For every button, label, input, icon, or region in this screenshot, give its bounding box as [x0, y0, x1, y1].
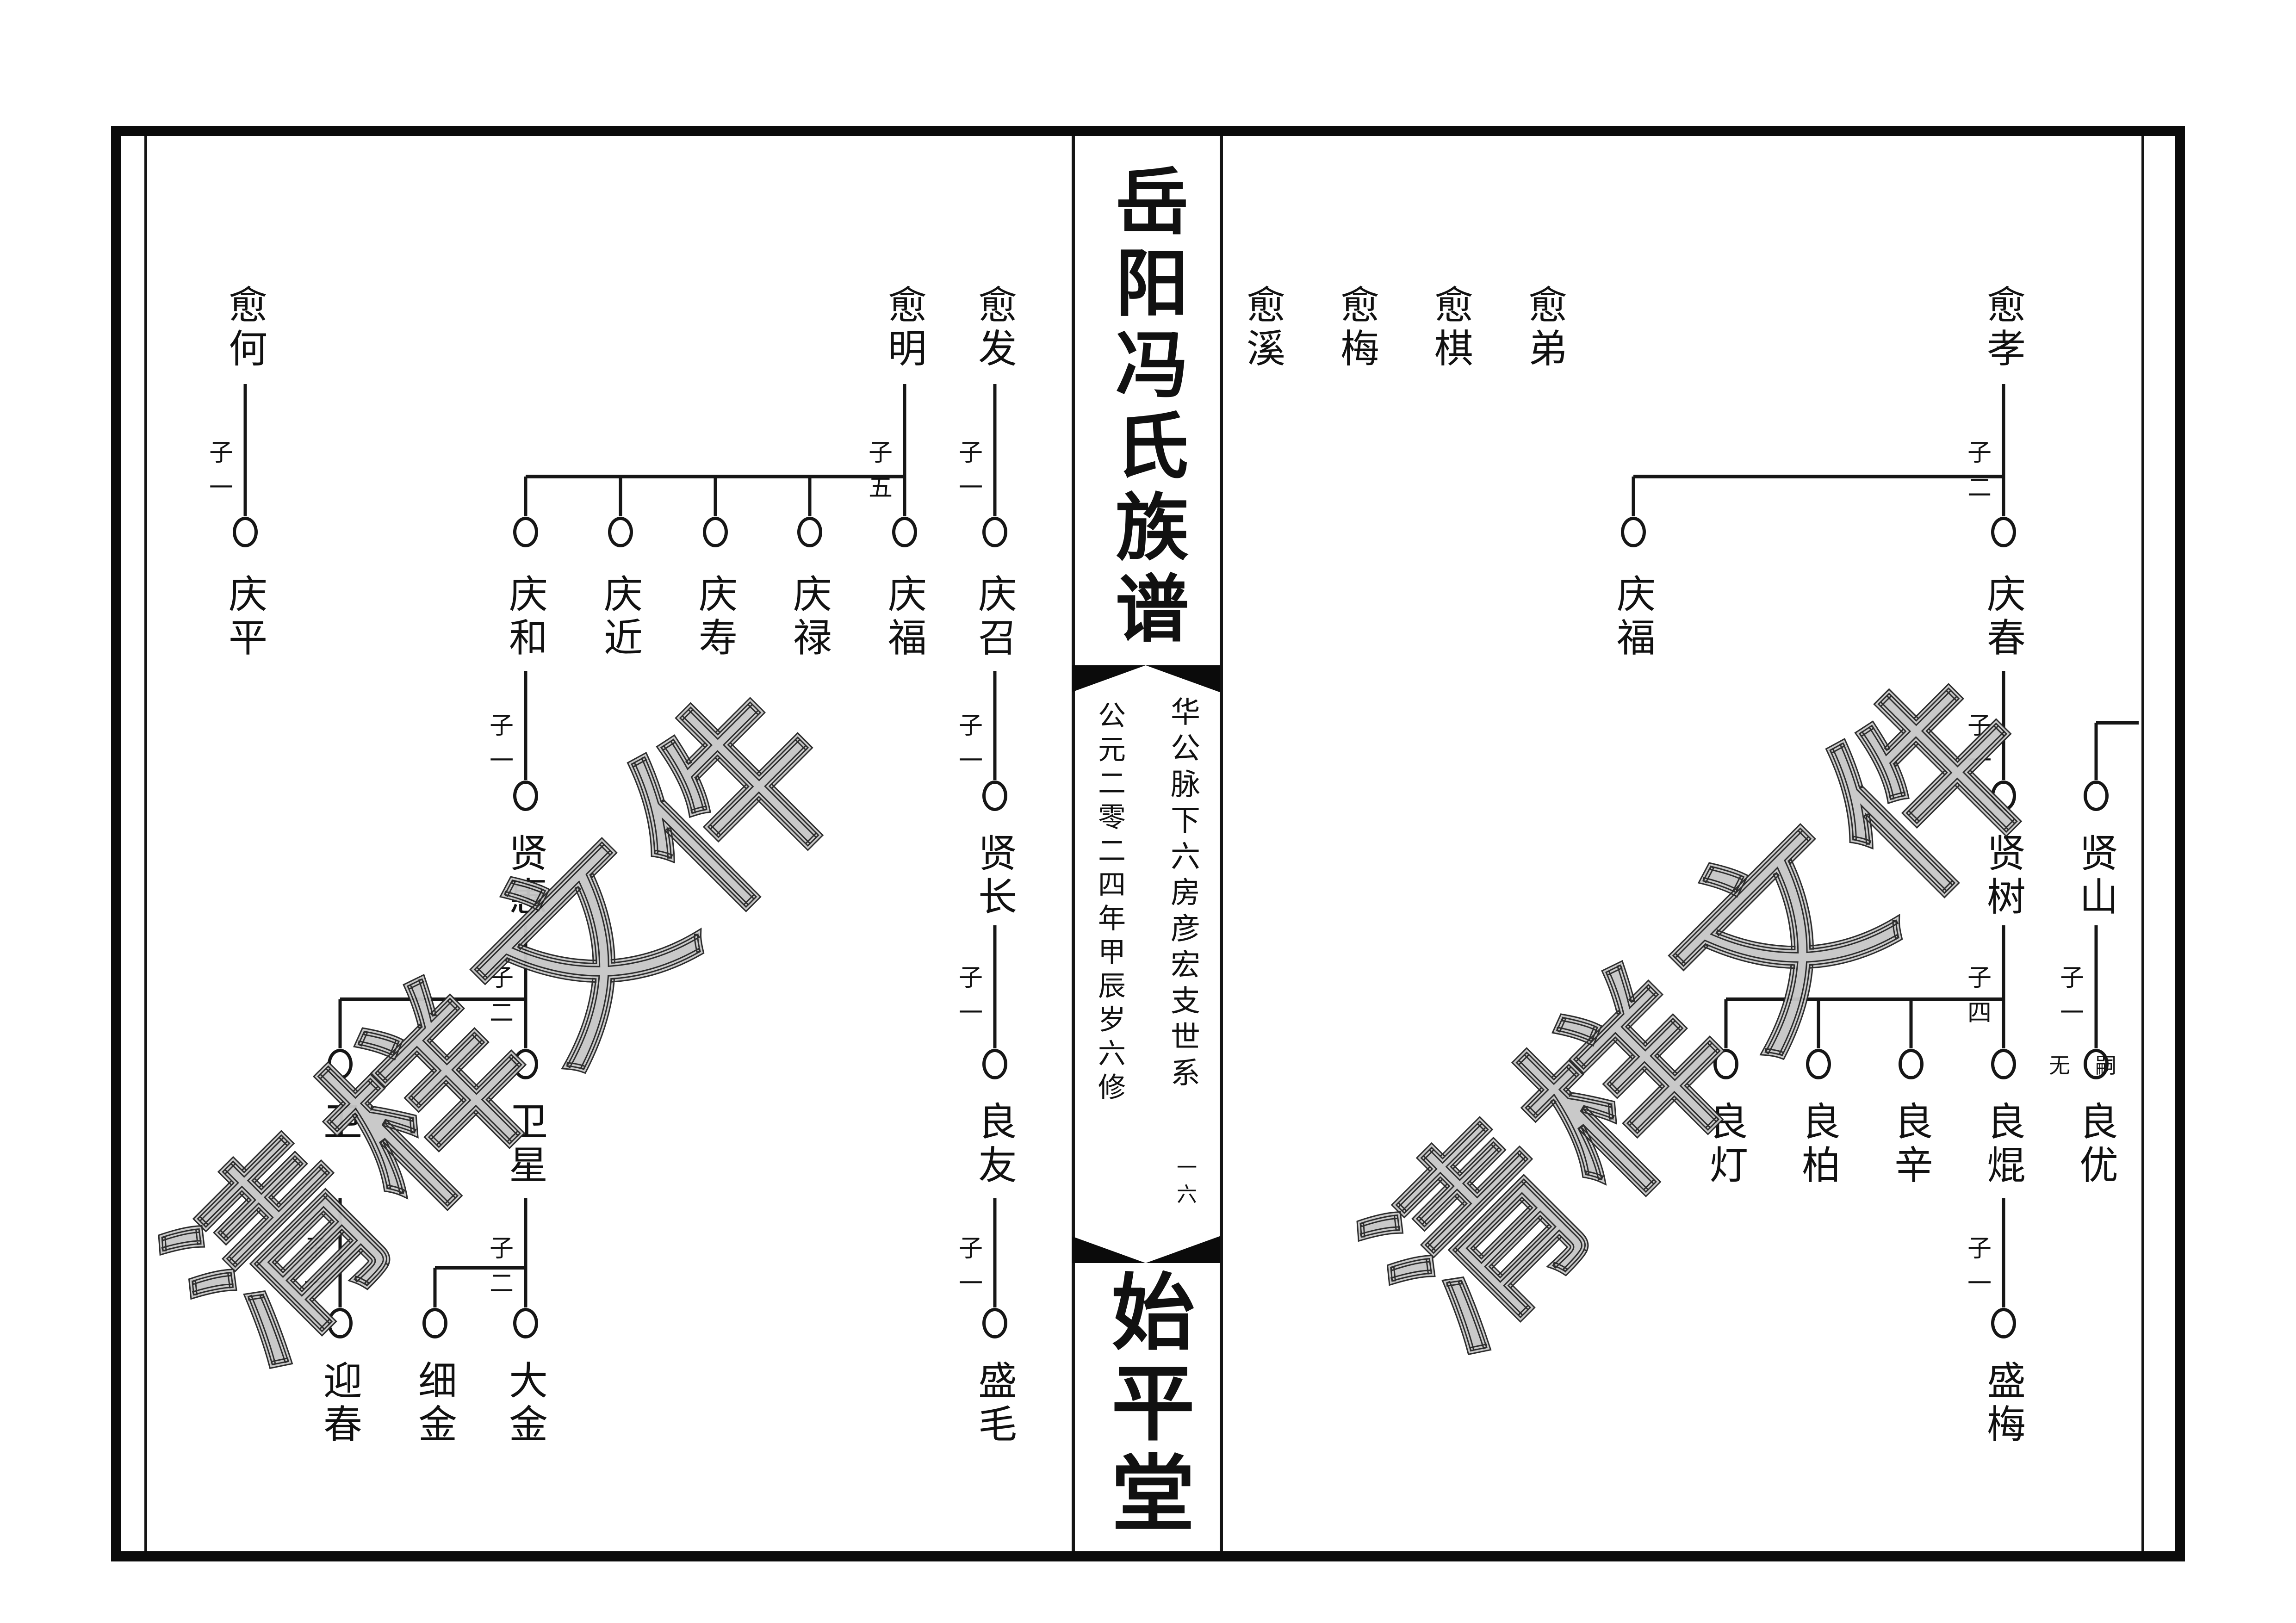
descent-line-horizontal [1633, 475, 2004, 478]
person-name: 细金 [407, 1360, 463, 1447]
person-name: 愈弟 [1517, 285, 1573, 372]
spine-rule-right [1220, 136, 1223, 1551]
person-node-circle [1991, 517, 2016, 547]
person-name: 良柏 [1791, 1101, 1847, 1188]
column-rule-right-page [2141, 136, 2144, 1551]
person-name: 庆福 [1606, 574, 1662, 661]
person-name: 庆近 [593, 574, 649, 661]
genealogy-book-page: 岳阳冯氏族谱 华公脉下六房彦宏支世系 公元二零二四年甲辰岁六修 一六 始平堂 愈… [0, 0, 2296, 1623]
descent-line-vertical [524, 671, 527, 780]
descent-line-vertical [903, 384, 906, 516]
person-name: 盛毛 [967, 1360, 1023, 1447]
person-node-circle [1991, 1049, 2016, 1079]
son-count-label: 子一 [951, 440, 986, 510]
person-node-circle [513, 517, 538, 547]
column-rule-left-page [144, 136, 147, 1551]
person-name: 愈何 [217, 285, 273, 372]
descent-line-vertical [244, 384, 247, 516]
person-node-circle [233, 517, 258, 547]
person-name: 愈梅 [1329, 285, 1385, 372]
person-name: 庆和 [498, 574, 554, 661]
person-node-circle [1991, 1308, 2016, 1338]
person-node-circle [703, 517, 728, 547]
son-count-label: 子一 [951, 1235, 986, 1306]
descent-line-vertical [808, 477, 812, 516]
heir-status-annotation: 无嗣 [2049, 1049, 2141, 1079]
person-name: 贤山 [2068, 833, 2124, 920]
person-node-circle [982, 517, 1007, 547]
person-name: 庆春 [1976, 574, 2032, 661]
person-node-circle [982, 1049, 1007, 1079]
descent-line-vertical [993, 671, 997, 780]
person-name: 庆禄 [782, 574, 838, 661]
person-name: 良友 [967, 1101, 1023, 1188]
son-count-label: 子一 [2053, 965, 2087, 1035]
descent-line-vertical [2002, 1198, 2005, 1307]
spine-title: 岳阳冯氏族谱 [1093, 163, 1199, 652]
person-node-circle [608, 517, 633, 547]
descent-line-vertical [2095, 925, 2098, 1048]
person-node-circle [1899, 1049, 1924, 1079]
descent-line-vertical [714, 477, 717, 516]
son-count-label: 子四 [1960, 965, 1995, 1035]
descent-line-vertical [2002, 384, 2005, 516]
person-node-circle [797, 517, 822, 547]
descent-line-vertical [1910, 999, 1913, 1048]
person-node-circle [513, 1308, 538, 1338]
descent-line-vertical [993, 1198, 997, 1307]
person-name: 庆平 [217, 574, 273, 661]
son-count-label: 子一 [482, 712, 517, 783]
descent-line-vertical [524, 1198, 527, 1307]
son-count-label: 子二 [482, 1235, 517, 1306]
descent-line-horizontal [2096, 721, 2139, 725]
descent-line-vertical [2095, 723, 2098, 780]
hall-name: 始平堂 [1086, 1269, 1206, 1541]
descent-line-vertical [524, 477, 527, 516]
son-count-label: 子一 [1960, 1235, 1995, 1306]
person-name: 愈发 [967, 285, 1023, 372]
descent-line-vertical [2002, 925, 2005, 1048]
son-count-label: 子二 [1960, 440, 1995, 510]
son-count-label: 子一 [202, 440, 236, 510]
son-count-label: 子一 [951, 965, 986, 1035]
person-name: 愈孝 [1976, 285, 2032, 372]
person-name: 良优 [2068, 1101, 2124, 1188]
edition-date-subtitle: 公元二零二四年甲辰岁六修 [1090, 701, 1130, 1106]
spine-rule-left [1072, 136, 1075, 1551]
person-name: 愈棋 [1423, 285, 1479, 372]
son-count-label: 子一 [951, 712, 986, 783]
branch-lineage-subtitle: 华公脉下六房彦宏支世系 [1161, 696, 1204, 1093]
descent-line-horizontal [526, 475, 905, 478]
person-node-circle [1621, 517, 1646, 547]
person-node-circle [892, 517, 917, 547]
son-count-label: 子五 [861, 440, 896, 510]
person-node-circle [982, 1308, 1007, 1338]
person-name: 盛梅 [1976, 1360, 2032, 1447]
person-node-circle [422, 1308, 447, 1338]
person-name: 良辛 [1883, 1101, 1939, 1188]
person-name: 愈明 [877, 285, 933, 372]
descent-line-vertical [993, 384, 997, 516]
person-node-circle [982, 781, 1007, 811]
page-number: 一六 [1170, 1157, 1199, 1210]
person-name: 贤长 [967, 833, 1023, 920]
person-name: 庆福 [877, 574, 933, 661]
descent-line-vertical [619, 477, 622, 516]
person-name: 愈溪 [1235, 285, 1291, 372]
person-name: 大金 [498, 1360, 554, 1447]
descent-line-vertical [993, 925, 997, 1048]
descent-line-vertical [1632, 477, 1635, 516]
person-name: 庆召 [967, 574, 1023, 661]
person-name: 良焜 [1976, 1101, 2032, 1188]
